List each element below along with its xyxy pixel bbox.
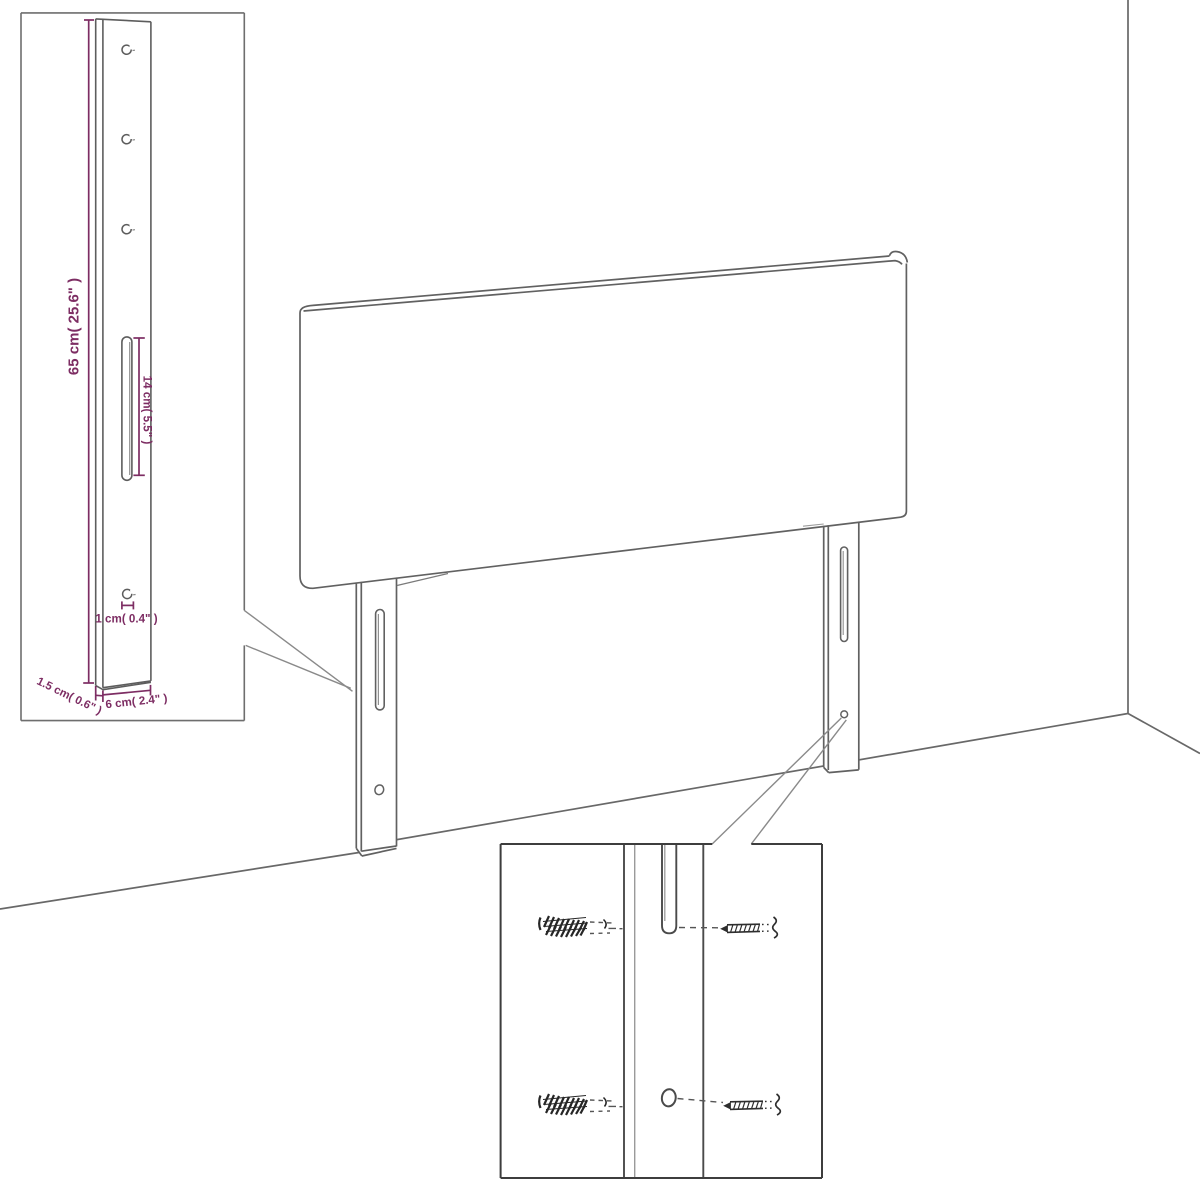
svg-text:1 cm( 0.4" ): 1 cm( 0.4" ): [95, 613, 157, 626]
svg-text:65 cm( 25.6" ): 65 cm( 25.6" ): [65, 278, 82, 375]
svg-text:14 cm( 5.5" ): 14 cm( 5.5" ): [141, 376, 154, 445]
